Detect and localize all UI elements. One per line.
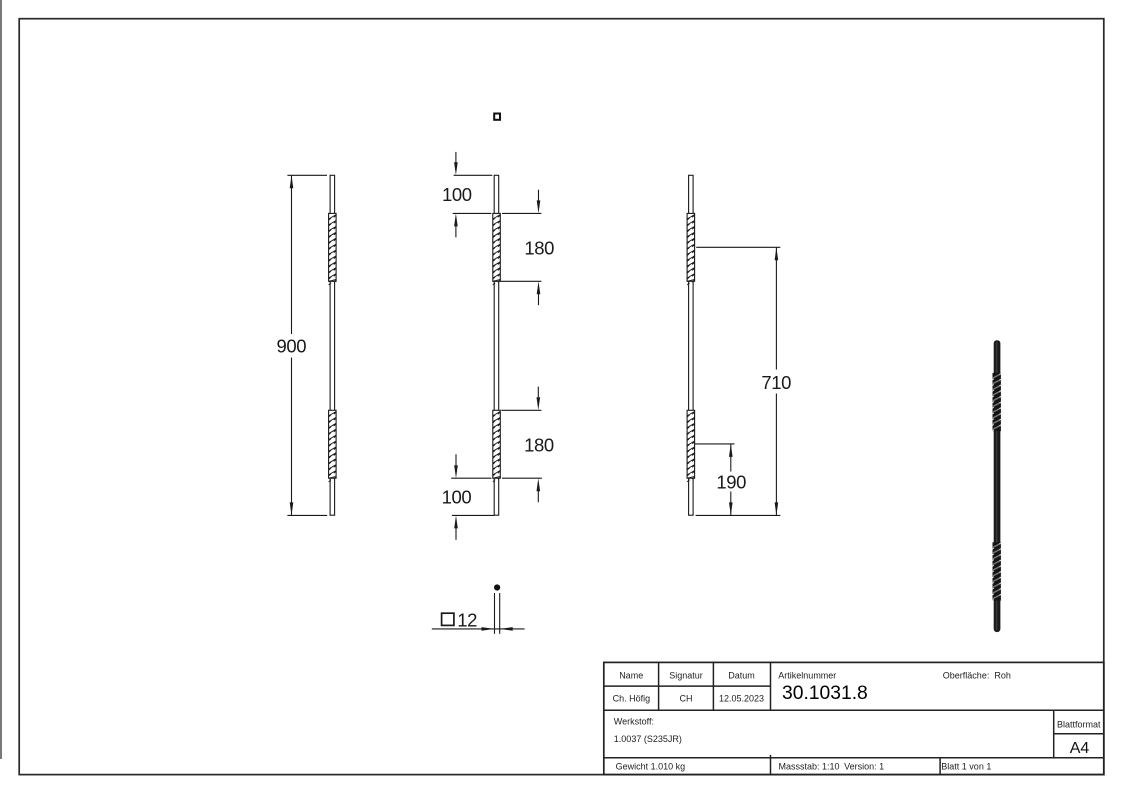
- svg-text:180: 180: [524, 434, 554, 455]
- svg-text:Signatur: Signatur: [669, 670, 703, 680]
- svg-text:Datum: Datum: [728, 670, 755, 680]
- svg-text:1.0037 (S235JR): 1.0037 (S235JR): [614, 734, 682, 744]
- svg-text:Gewicht 1.010 kg: Gewicht 1.010 kg: [616, 762, 686, 772]
- svg-text:Oberfläche: Roh: Oberfläche: Roh: [943, 670, 1011, 680]
- svg-text:Name: Name: [619, 670, 643, 680]
- svg-text:100: 100: [442, 184, 472, 205]
- svg-text:Werkstoff:: Werkstoff:: [614, 717, 654, 727]
- svg-text:Artikelnummer: Artikelnummer: [778, 671, 836, 681]
- svg-text:180: 180: [524, 238, 554, 259]
- svg-text:A4: A4: [1070, 740, 1090, 757]
- svg-text:12: 12: [457, 609, 477, 630]
- svg-text:30.1031.8: 30.1031.8: [782, 683, 868, 704]
- svg-text:710: 710: [761, 372, 791, 393]
- svg-text:Massstab: 1:10: Massstab: 1:10: [779, 762, 840, 772]
- svg-text:900: 900: [276, 336, 306, 357]
- svg-text:Blattformat: Blattformat: [1057, 720, 1101, 730]
- svg-text:Blatt 1 von 1: Blatt 1 von 1: [941, 762, 991, 772]
- svg-text:Ch. Höfig: Ch. Höfig: [613, 694, 651, 704]
- svg-text:Version: 1: Version: 1: [844, 762, 884, 772]
- svg-text:190: 190: [716, 471, 746, 492]
- svg-text:CH: CH: [680, 694, 693, 704]
- svg-text:100: 100: [442, 487, 472, 508]
- svg-text:12.05.2023: 12.05.2023: [719, 694, 764, 704]
